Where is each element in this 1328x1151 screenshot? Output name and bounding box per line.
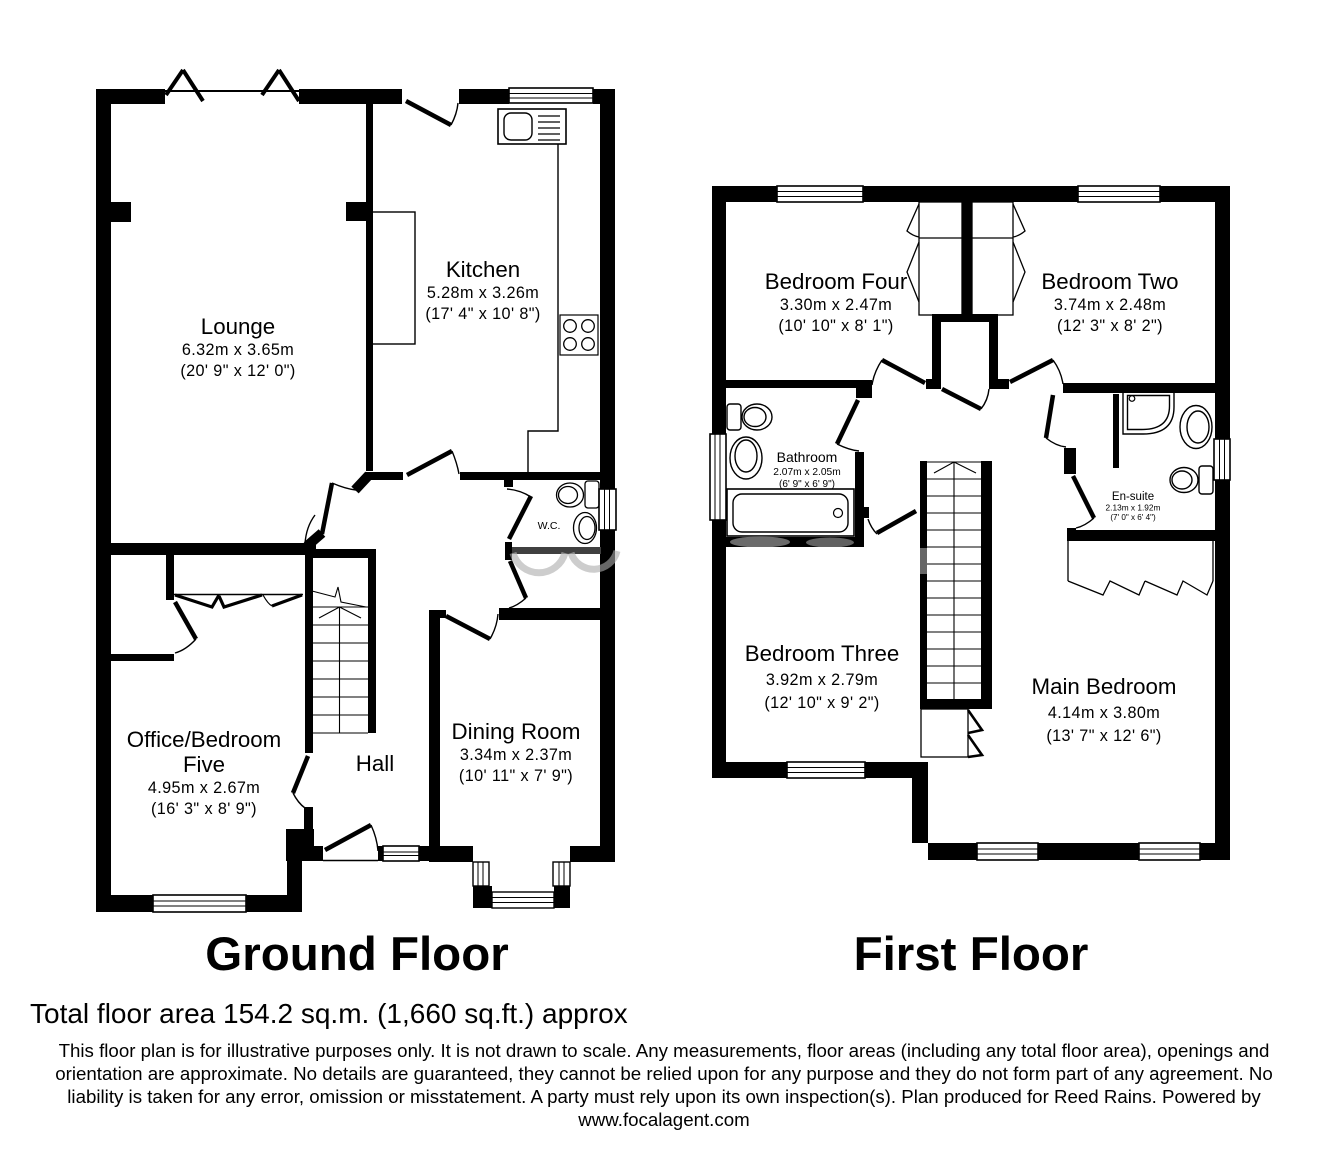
- svg-text:Bathroom: Bathroom: [777, 449, 838, 465]
- svg-text:Hall: Hall: [356, 751, 394, 776]
- svg-text:Main Bedroom: Main Bedroom: [1032, 674, 1177, 699]
- svg-text:2.13m x 1.92m: 2.13m x 1.92m: [1106, 503, 1161, 513]
- svg-text:Kitchen: Kitchen: [446, 257, 520, 282]
- svg-text:(10' 10" x 8' 1"): (10' 10" x 8' 1"): [778, 317, 893, 335]
- svg-text:(10' 11" x 7' 9"): (10' 11" x 7' 9"): [459, 767, 573, 785]
- svg-text:(12' 10" x 9' 2"): (12' 10" x 9' 2"): [764, 694, 879, 712]
- svg-text:(6' 9" x 6' 9"): (6' 9" x 6' 9"): [779, 479, 835, 490]
- svg-text:Bedroom Two: Bedroom Two: [1041, 269, 1178, 294]
- svg-text:3.92m x 2.79m: 3.92m x 2.79m: [766, 671, 878, 689]
- svg-text:3.34m x 2.37m: 3.34m x 2.37m: [460, 746, 572, 764]
- svg-text:liability is taken for any err: liability is taken for any error, omissi…: [67, 1086, 1261, 1107]
- svg-text:4.14m x 3.80m: 4.14m x 3.80m: [1048, 704, 1160, 722]
- svg-text:orientation are approximate. N: orientation are approximate. No details …: [55, 1063, 1273, 1084]
- svg-text:(7' 0" x 6' 4"): (7' 0" x 6' 4"): [1110, 513, 1156, 522]
- svg-text:www.focalagent.com: www.focalagent.com: [577, 1109, 749, 1130]
- svg-text:(16' 3" x 8' 9"): (16' 3" x 8' 9"): [151, 800, 257, 818]
- svg-text:2.07m x 2.05m: 2.07m x 2.05m: [773, 467, 840, 478]
- svg-text:3.30m x 2.47m: 3.30m x 2.47m: [780, 296, 892, 314]
- svg-text:(20' 9" x 12' 0"): (20' 9" x 12' 0"): [180, 362, 295, 380]
- svg-text:Five: Five: [183, 752, 225, 777]
- svg-text:3.74m x 2.48m: 3.74m x 2.48m: [1054, 296, 1166, 314]
- svg-text:(17' 4" x 10' 8"): (17' 4" x 10' 8"): [425, 305, 540, 323]
- svg-text:6.32m x 3.65m: 6.32m x 3.65m: [182, 341, 294, 359]
- svg-text:(13' 7" x 12' 6"): (13' 7" x 12' 6"): [1046, 727, 1161, 745]
- svg-text:5.28m x 3.26m: 5.28m x 3.26m: [427, 284, 539, 302]
- svg-text:Bedroom Four: Bedroom Four: [765, 269, 908, 294]
- svg-text:Total floor area 154.2 sq.m. (: Total floor area 154.2 sq.m. (1,660 sq.f…: [30, 998, 628, 1029]
- svg-text:Office/Bedroom: Office/Bedroom: [127, 727, 282, 752]
- svg-text:Bedroom Three: Bedroom Three: [745, 641, 900, 666]
- svg-text:Dining Room: Dining Room: [452, 719, 581, 744]
- svg-text:Ground Floor: Ground Floor: [205, 928, 508, 981]
- svg-text:(12' 3" x 8' 2"): (12' 3" x 8' 2"): [1057, 317, 1163, 335]
- svg-text:First Floor: First Floor: [854, 928, 1089, 981]
- svg-text:This floor plan is for illustr: This floor plan is for illustrative purp…: [59, 1040, 1270, 1061]
- svg-text:W.C.: W.C.: [538, 520, 561, 532]
- svg-text:En-suite: En-suite: [1112, 491, 1154, 503]
- svg-text:Lounge: Lounge: [201, 314, 275, 339]
- svg-text:4.95m x 2.67m: 4.95m x 2.67m: [148, 779, 260, 797]
